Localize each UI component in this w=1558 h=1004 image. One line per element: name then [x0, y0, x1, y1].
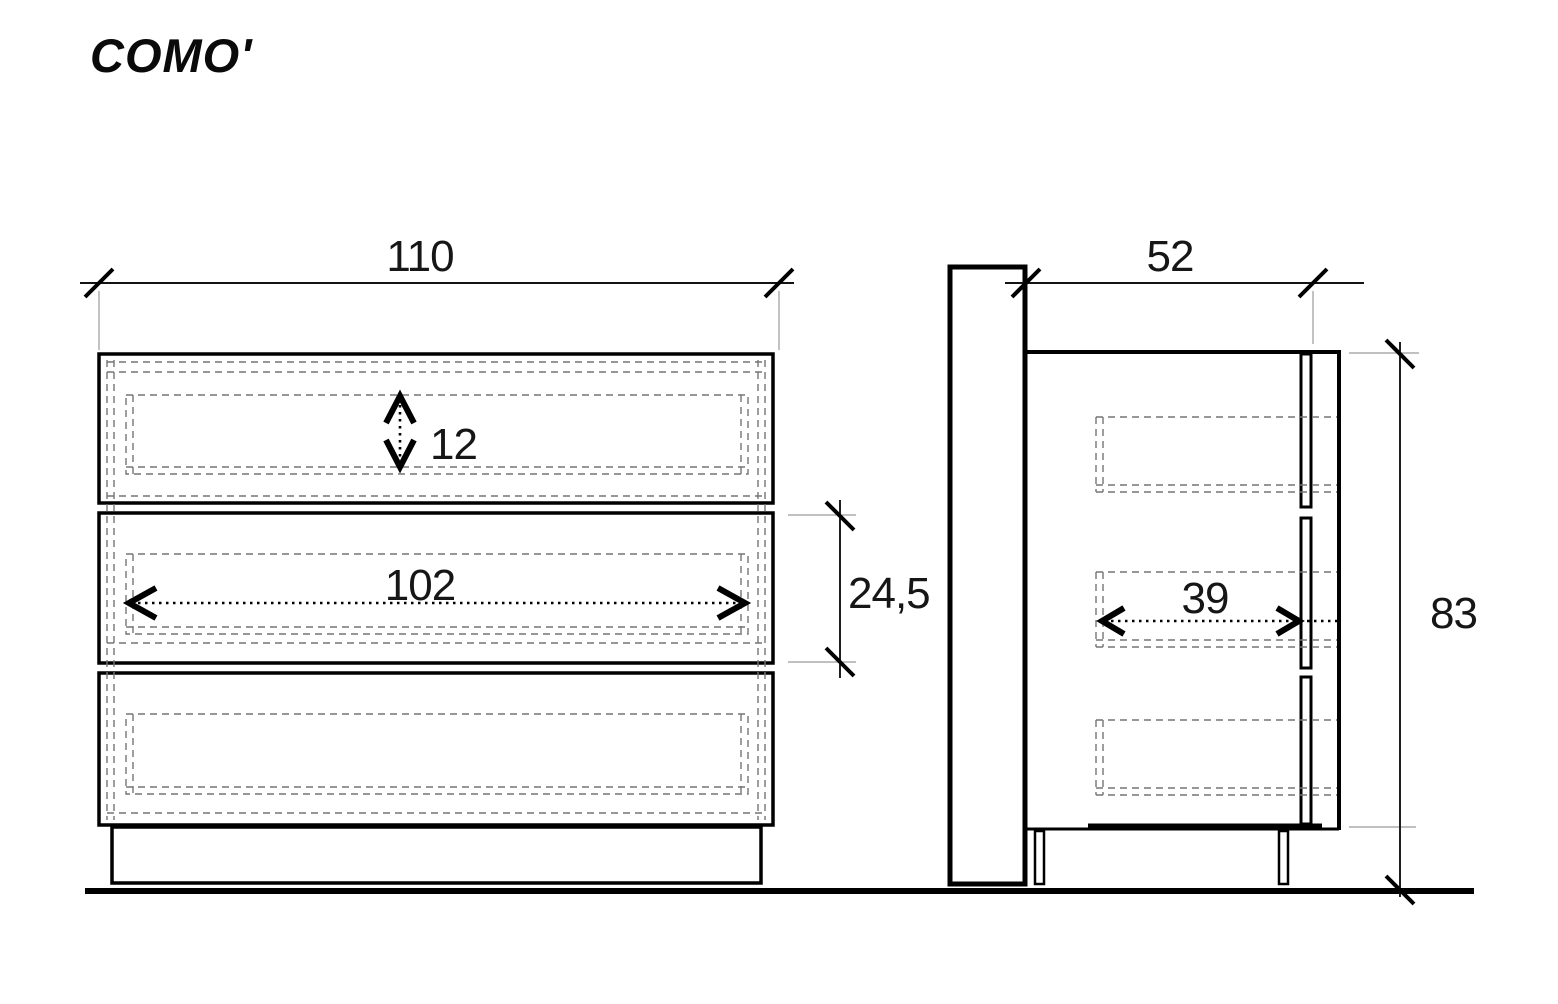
front-drawer-3-hidden-box — [126, 714, 748, 794]
technical-drawing-page: COMO' — [0, 0, 1558, 1004]
arrow-down — [386, 440, 414, 467]
dim-total-height-value: 83 — [1430, 589, 1477, 638]
dim-drawer-inner-depth-value: 39 — [1182, 574, 1229, 623]
dim-side-depth: 52 — [1005, 232, 1364, 344]
side-leg-front — [1279, 831, 1288, 884]
dim-drawer-inner-width-value: 102 — [385, 561, 455, 610]
side-drawer-2-front — [1301, 518, 1311, 668]
side-back-panel — [950, 267, 1025, 884]
dim-drawer-inner-width: 102 — [129, 561, 745, 618]
front-drawer-3 — [99, 673, 773, 825]
side-drawer-1-front — [1301, 354, 1311, 507]
dim-drawer-front-height: 24,5 — [788, 500, 930, 678]
front-plinth-base — [112, 827, 761, 883]
como-dimension-drawing: COMO' — [0, 0, 1558, 1004]
dim-drawer-inner-height: 12 — [386, 396, 477, 469]
dim-total-height: 83 — [1349, 340, 1477, 904]
dim-side-depth-value: 52 — [1147, 232, 1194, 281]
dim-drawer-front-height-value: 24,5 — [848, 569, 930, 618]
side-view — [950, 267, 1341, 884]
dim-front-width-value: 110 — [386, 232, 453, 281]
arrow-up — [386, 396, 414, 423]
dim-drawer-inner-height-value: 12 — [430, 420, 477, 469]
side-leg-rear — [1035, 831, 1044, 884]
dim-front-width: 110 — [80, 232, 794, 350]
side-drawer-3-front — [1301, 677, 1311, 824]
page-title: COMO' — [90, 29, 253, 82]
